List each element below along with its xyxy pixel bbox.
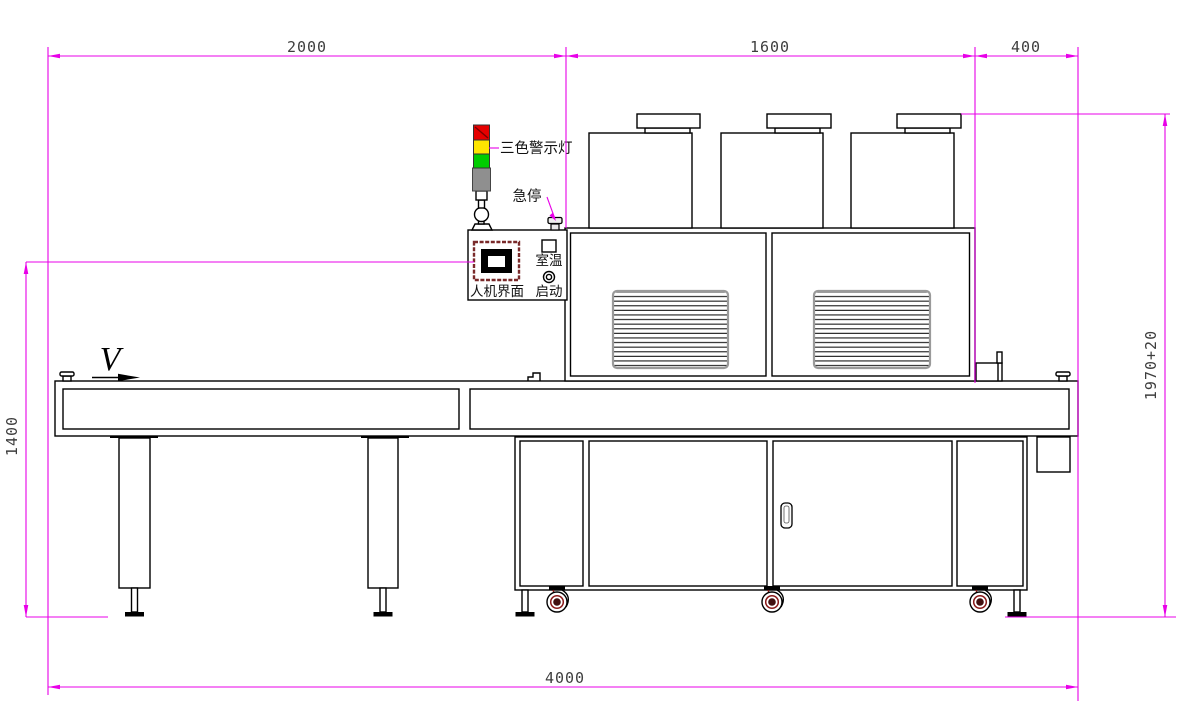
table-leg <box>368 438 398 588</box>
cabinet-side-panel-left <box>520 441 583 586</box>
cabinet-door-right <box>773 441 952 586</box>
belt-direction-indicator: V <box>92 341 140 381</box>
ventilation-louver-right <box>814 291 930 368</box>
adjustable-foot <box>125 588 144 617</box>
exhaust-duct-body <box>721 133 823 228</box>
belt-guide-bracket-left <box>528 373 540 381</box>
exhaust-duct-body <box>851 133 954 228</box>
belt-direction-letter: V <box>100 341 125 378</box>
adjustable-foot <box>516 590 535 617</box>
duct-neck <box>905 128 950 133</box>
tower-pole-block <box>476 191 487 200</box>
belt-tension-knob <box>60 372 74 381</box>
duct-cap <box>637 114 700 128</box>
hmi-label: 人机界面 <box>470 284 524 299</box>
lower-cabinet <box>515 437 1070 617</box>
table-leg <box>119 438 150 588</box>
warning-tower-light: 三色警示灯 <box>472 125 573 230</box>
belt-section-right <box>470 389 1069 429</box>
dim-1400: 1400 <box>3 416 21 456</box>
duct-cap <box>767 114 831 128</box>
belt-guide-bracket-right <box>976 352 1002 381</box>
belt-section-left <box>63 389 459 429</box>
cad-drawing-canvas: V 室温 启动 人机界面 急停 <box>0 0 1185 713</box>
tower-segment-gray <box>473 168 491 191</box>
room-temp-label: 室温 <box>536 252 563 268</box>
dim-1970-20: 1970+20 <box>1142 330 1160 400</box>
uv-oven-housing <box>565 228 975 381</box>
adjustable-foot <box>1008 590 1027 617</box>
tower-pole <box>479 200 485 208</box>
cabinet-side-panel-right <box>957 441 1023 586</box>
dim-400: 400 <box>1011 38 1041 56</box>
dim-4000: 4000 <box>545 669 585 687</box>
duct-neck <box>645 128 690 133</box>
belt-tension-knob <box>1056 372 1070 381</box>
duct-neck <box>775 128 820 133</box>
hmi-screen-display <box>488 256 505 267</box>
exhaust-ducts <box>589 114 961 228</box>
dim-1600: 1600 <box>750 38 790 56</box>
tower-segment-green <box>474 154 490 168</box>
dim-2000: 2000 <box>287 38 327 56</box>
cabinet-door-left <box>589 441 767 586</box>
tower-light-label: 三色警示灯 <box>500 140 573 157</box>
ventilation-louver-left <box>613 291 728 368</box>
door-handle <box>781 503 792 528</box>
direction-arrowhead <box>118 374 140 381</box>
duct-cap <box>897 114 961 128</box>
tower-segment-yellow <box>474 140 490 154</box>
start-label: 启动 <box>536 284 563 299</box>
adjustable-foot <box>374 588 393 617</box>
tower-joint-ball <box>475 208 489 222</box>
emergency-stop-label: 急停 <box>513 188 542 205</box>
start-button <box>544 272 555 283</box>
side-junction-box <box>1037 437 1070 472</box>
infeed-table-legs <box>110 433 409 617</box>
tower-base <box>472 224 492 230</box>
exhaust-duct-body <box>589 133 692 228</box>
room-temp-sensor <box>542 240 556 252</box>
